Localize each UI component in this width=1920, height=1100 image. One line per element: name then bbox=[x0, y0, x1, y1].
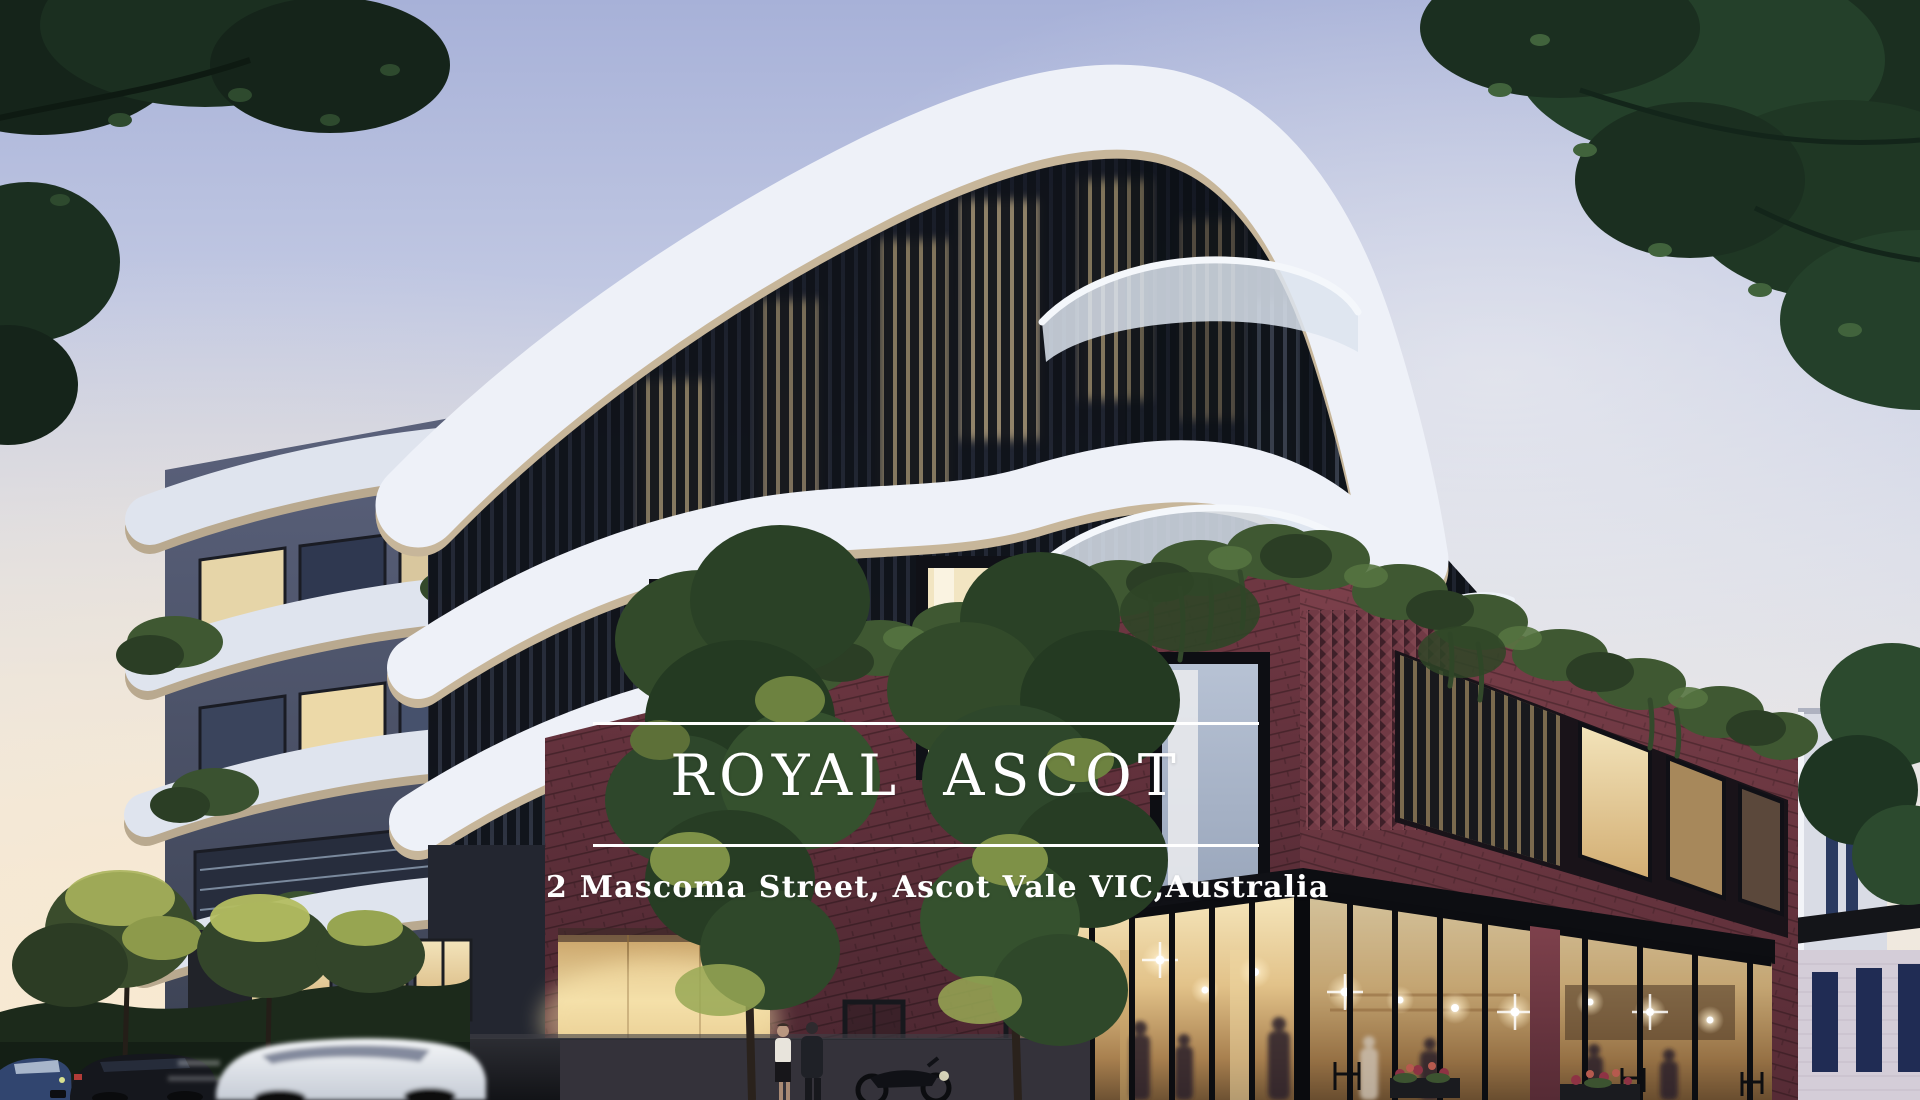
hero-image: ROYAL ASCOT 2 Mascoma Street, Ascot Vale… bbox=[0, 0, 1920, 1100]
corner-post bbox=[1294, 880, 1310, 1100]
storefront-brick-pier bbox=[1530, 926, 1560, 1100]
building-render-illustration bbox=[0, 0, 1920, 1100]
blue-hatchback bbox=[0, 1058, 72, 1100]
